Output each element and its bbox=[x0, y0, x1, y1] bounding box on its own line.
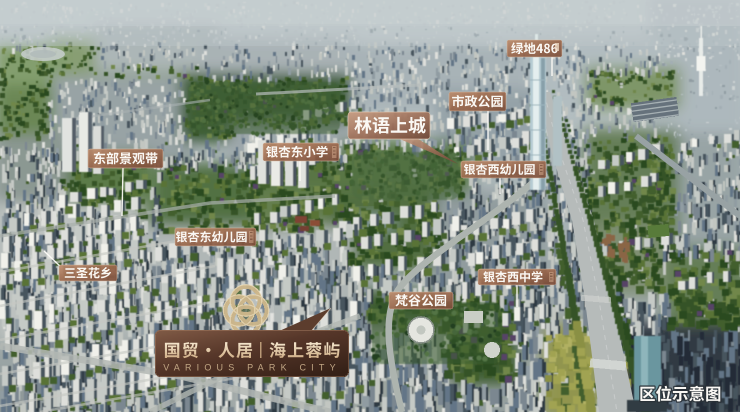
svg-text:VARIOUS PARK CITY: VARIOUS PARK CITY bbox=[163, 363, 341, 373]
